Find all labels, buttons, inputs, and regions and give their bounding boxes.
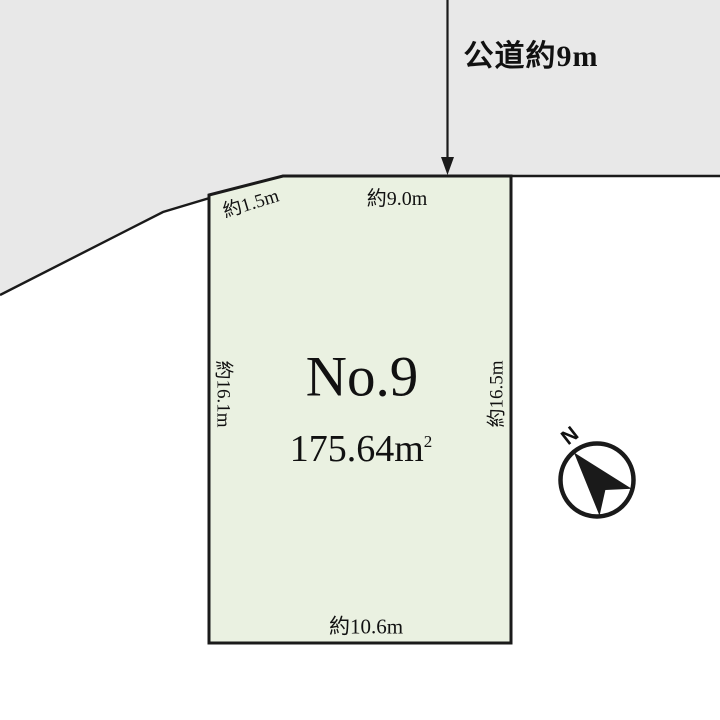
plot-area-label: 175.64m2 [290,430,433,468]
plot-area-unit-exponent: 2 [424,432,433,451]
plot-area-value: 175.64 [290,428,395,470]
plot-number-label: No.9 [306,349,418,406]
dimension-label-left: 約16.1m [214,360,233,427]
compass [558,439,634,517]
road-width-label: 公道約9m [464,42,599,72]
dimension-label-bottom: 約10.6m [329,617,403,638]
dimension-label-right: 約16.5m [488,360,507,427]
plot-area-unit: m [394,428,424,470]
plot-layout-diagram: 公道約9m 約1.5m 約9.0m 約16.1m 約16.5m 約10.6m N… [0,0,720,720]
plot-shape [209,176,511,643]
dimension-label-top: 約9.0m [367,189,428,209]
